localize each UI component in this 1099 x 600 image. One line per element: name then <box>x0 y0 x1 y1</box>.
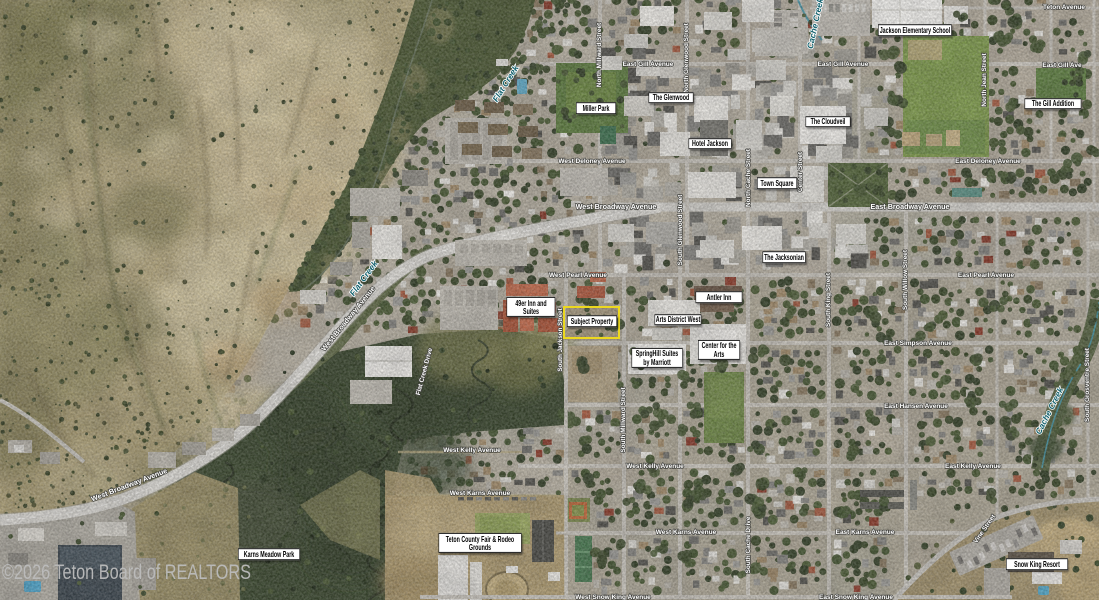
svg-text:East Simpson Avenue: East Simpson Avenue <box>884 340 952 347</box>
svg-text:West Deloney Avenue: West Deloney Avenue <box>558 158 626 165</box>
svg-text:East Deloney Avenue: East Deloney Avenue <box>955 158 1021 165</box>
svg-text:East Hansen Avenue: East Hansen Avenue <box>884 403 948 410</box>
svg-text:South Millward Street: South Millward Street <box>620 386 627 452</box>
svg-text:West Kelly Avenue: West Kelly Avenue <box>626 463 684 470</box>
svg-text:East Gill Avenue: East Gill Avenue <box>818 61 869 68</box>
svg-text:West Snow King Avenue: West Snow King Avenue <box>575 594 651 600</box>
svg-text:South King Street: South King Street <box>825 272 832 327</box>
svg-text:Teton Avenue: Teton Avenue <box>1043 4 1085 11</box>
svg-text:South Willow Street: South Willow Street <box>902 249 909 310</box>
svg-text:East Gill Ave: East Gill Ave <box>1042 62 1082 69</box>
svg-text:East Pearl Avenue: East Pearl Avenue <box>958 272 1015 279</box>
svg-text:North Millward Street: North Millward Street <box>596 22 603 87</box>
svg-text:East Kelly Avenue: East Kelly Avenue <box>945 463 1001 470</box>
svg-text:East Gill Avenue: East Gill Avenue <box>623 61 674 68</box>
svg-text:West Pearl Avenue: West Pearl Avenue <box>549 272 607 279</box>
svg-text:East Karns Avenue: East Karns Avenue <box>836 529 895 536</box>
svg-text:North Cache Street: North Cache Street <box>745 148 752 207</box>
svg-text:West Karns Avenue: West Karns Avenue <box>450 490 511 497</box>
svg-text:West Karns Avenue: West Karns Avenue <box>656 529 717 536</box>
svg-text:West Kelly Avenue: West Kelly Avenue <box>443 447 501 454</box>
svg-text:North Glenwood Street: North Glenwood Street <box>683 22 690 92</box>
svg-text:North Jean Street: North Jean Street <box>981 52 988 106</box>
svg-text:Center Street: Center Street <box>797 151 804 192</box>
svg-text:East Broadway Avenue: East Broadway Avenue <box>871 202 950 211</box>
svg-text:South Cache Drive: South Cache Drive <box>745 516 752 573</box>
svg-text:West Broadway Avenue: West Broadway Avenue <box>576 202 657 211</box>
svg-text:South Glenwood Street: South Glenwood Street <box>677 194 684 266</box>
svg-text:South Grosventre Street: South Grosventre Street <box>1084 347 1091 422</box>
svg-text:East Snow King Avenue: East Snow King Avenue <box>819 594 893 600</box>
